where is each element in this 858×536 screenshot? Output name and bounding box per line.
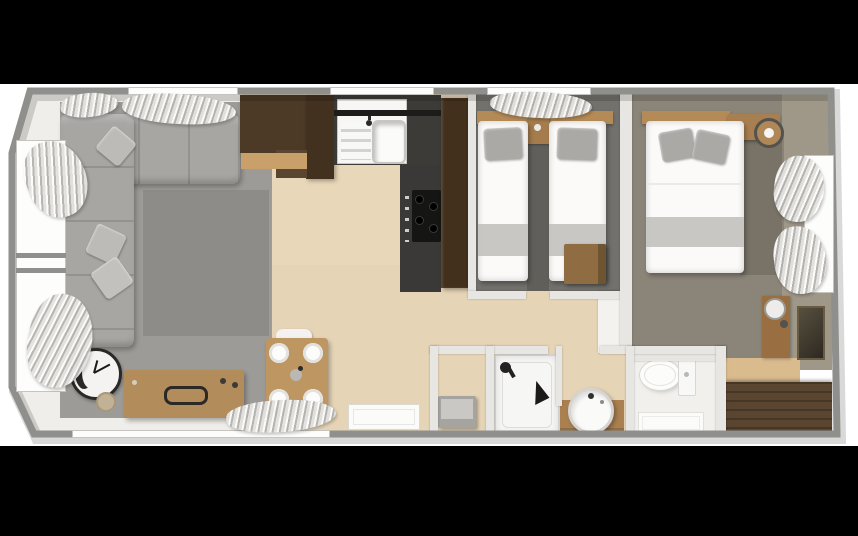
toilet-seat-line <box>644 364 676 386</box>
twin-bed-1 <box>478 121 528 281</box>
sideboard <box>124 370 244 418</box>
wall-basin-wc <box>626 346 634 434</box>
sink-wall-shadow-bar <box>334 110 441 116</box>
table-lamp <box>754 118 784 148</box>
sink-tap-dot <box>366 120 372 126</box>
hob <box>412 190 441 242</box>
wall-wc-right <box>716 346 726 434</box>
hob-burner <box>415 216 424 225</box>
wall-mirror <box>797 306 825 360</box>
wardrobe-landing-wood <box>726 358 800 384</box>
basket <box>96 392 116 412</box>
twin-bed-1-pillow <box>483 127 523 161</box>
dressing-stool-dot <box>780 320 788 328</box>
washbasin <box>568 388 614 434</box>
wall-entry-bath <box>430 346 438 434</box>
duvet-fold <box>646 183 744 185</box>
window-mullion <box>16 253 66 258</box>
sideboard-handle <box>164 386 208 405</box>
master-pillow <box>658 127 697 162</box>
bedside-item <box>534 124 541 131</box>
bench-top <box>441 399 473 419</box>
sink-drainer <box>341 122 371 160</box>
living-rug <box>143 190 269 336</box>
place-setting <box>269 343 289 363</box>
kitchen-cabinet-tall <box>306 95 334 179</box>
window-mullion <box>16 268 66 273</box>
twin-storage-chest <box>564 244 606 284</box>
hob-burner <box>429 224 438 233</box>
chest-side <box>598 244 606 284</box>
doormat <box>348 404 420 430</box>
window-kitchen-sink <box>330 87 434 95</box>
basin-tap <box>588 393 594 399</box>
table-centerpiece-dot <box>298 366 303 371</box>
wall-bench-shower <box>486 346 494 434</box>
hob-burner <box>415 195 424 204</box>
wall-master-bottom <box>630 353 726 361</box>
twin-bed-1-runner <box>478 224 528 256</box>
hob-burner <box>429 202 438 211</box>
master-double-bed <box>646 121 744 273</box>
master-bed-runner <box>646 217 744 247</box>
wall-twin-bottom-right <box>550 291 626 299</box>
flush-button <box>684 372 689 377</box>
toilet-cistern <box>678 356 696 396</box>
kitchen-cabinet-block <box>240 95 310 153</box>
wall-twin-master <box>620 93 632 353</box>
master-door-open <box>598 291 622 353</box>
place-setting <box>303 343 323 363</box>
sideboard-knob <box>132 380 137 385</box>
plan-interior <box>0 0 858 536</box>
wall-shower-basin <box>556 346 562 406</box>
dressing-mirror-round <box>764 298 786 320</box>
sideboard-knob <box>232 382 238 388</box>
shower-cubicle <box>494 354 560 436</box>
master-pillow <box>691 129 730 165</box>
fridge-tall-unit <box>441 98 469 288</box>
twin-bedside-unit <box>527 116 549 144</box>
hob-knobs <box>405 196 409 242</box>
lamp-center <box>764 128 774 138</box>
floor-plan-page <box>0 0 858 536</box>
kitchen-cabinet-edge <box>241 153 307 169</box>
bathroom-bench <box>438 396 476 428</box>
twin-bed-2-pillow <box>556 127 597 160</box>
wall-twin-bottom-left <box>468 291 526 299</box>
twin-center-runner <box>527 140 549 291</box>
wardrobe <box>726 382 832 435</box>
sink-bowl <box>372 120 406 164</box>
basin-dot <box>600 400 604 404</box>
wc-bath-mat <box>638 412 704 434</box>
wall-kitchen-twin <box>468 93 476 291</box>
sideboard-knob <box>220 378 226 384</box>
wall-wc-top <box>634 346 726 354</box>
toilet-bowl <box>640 360 680 390</box>
